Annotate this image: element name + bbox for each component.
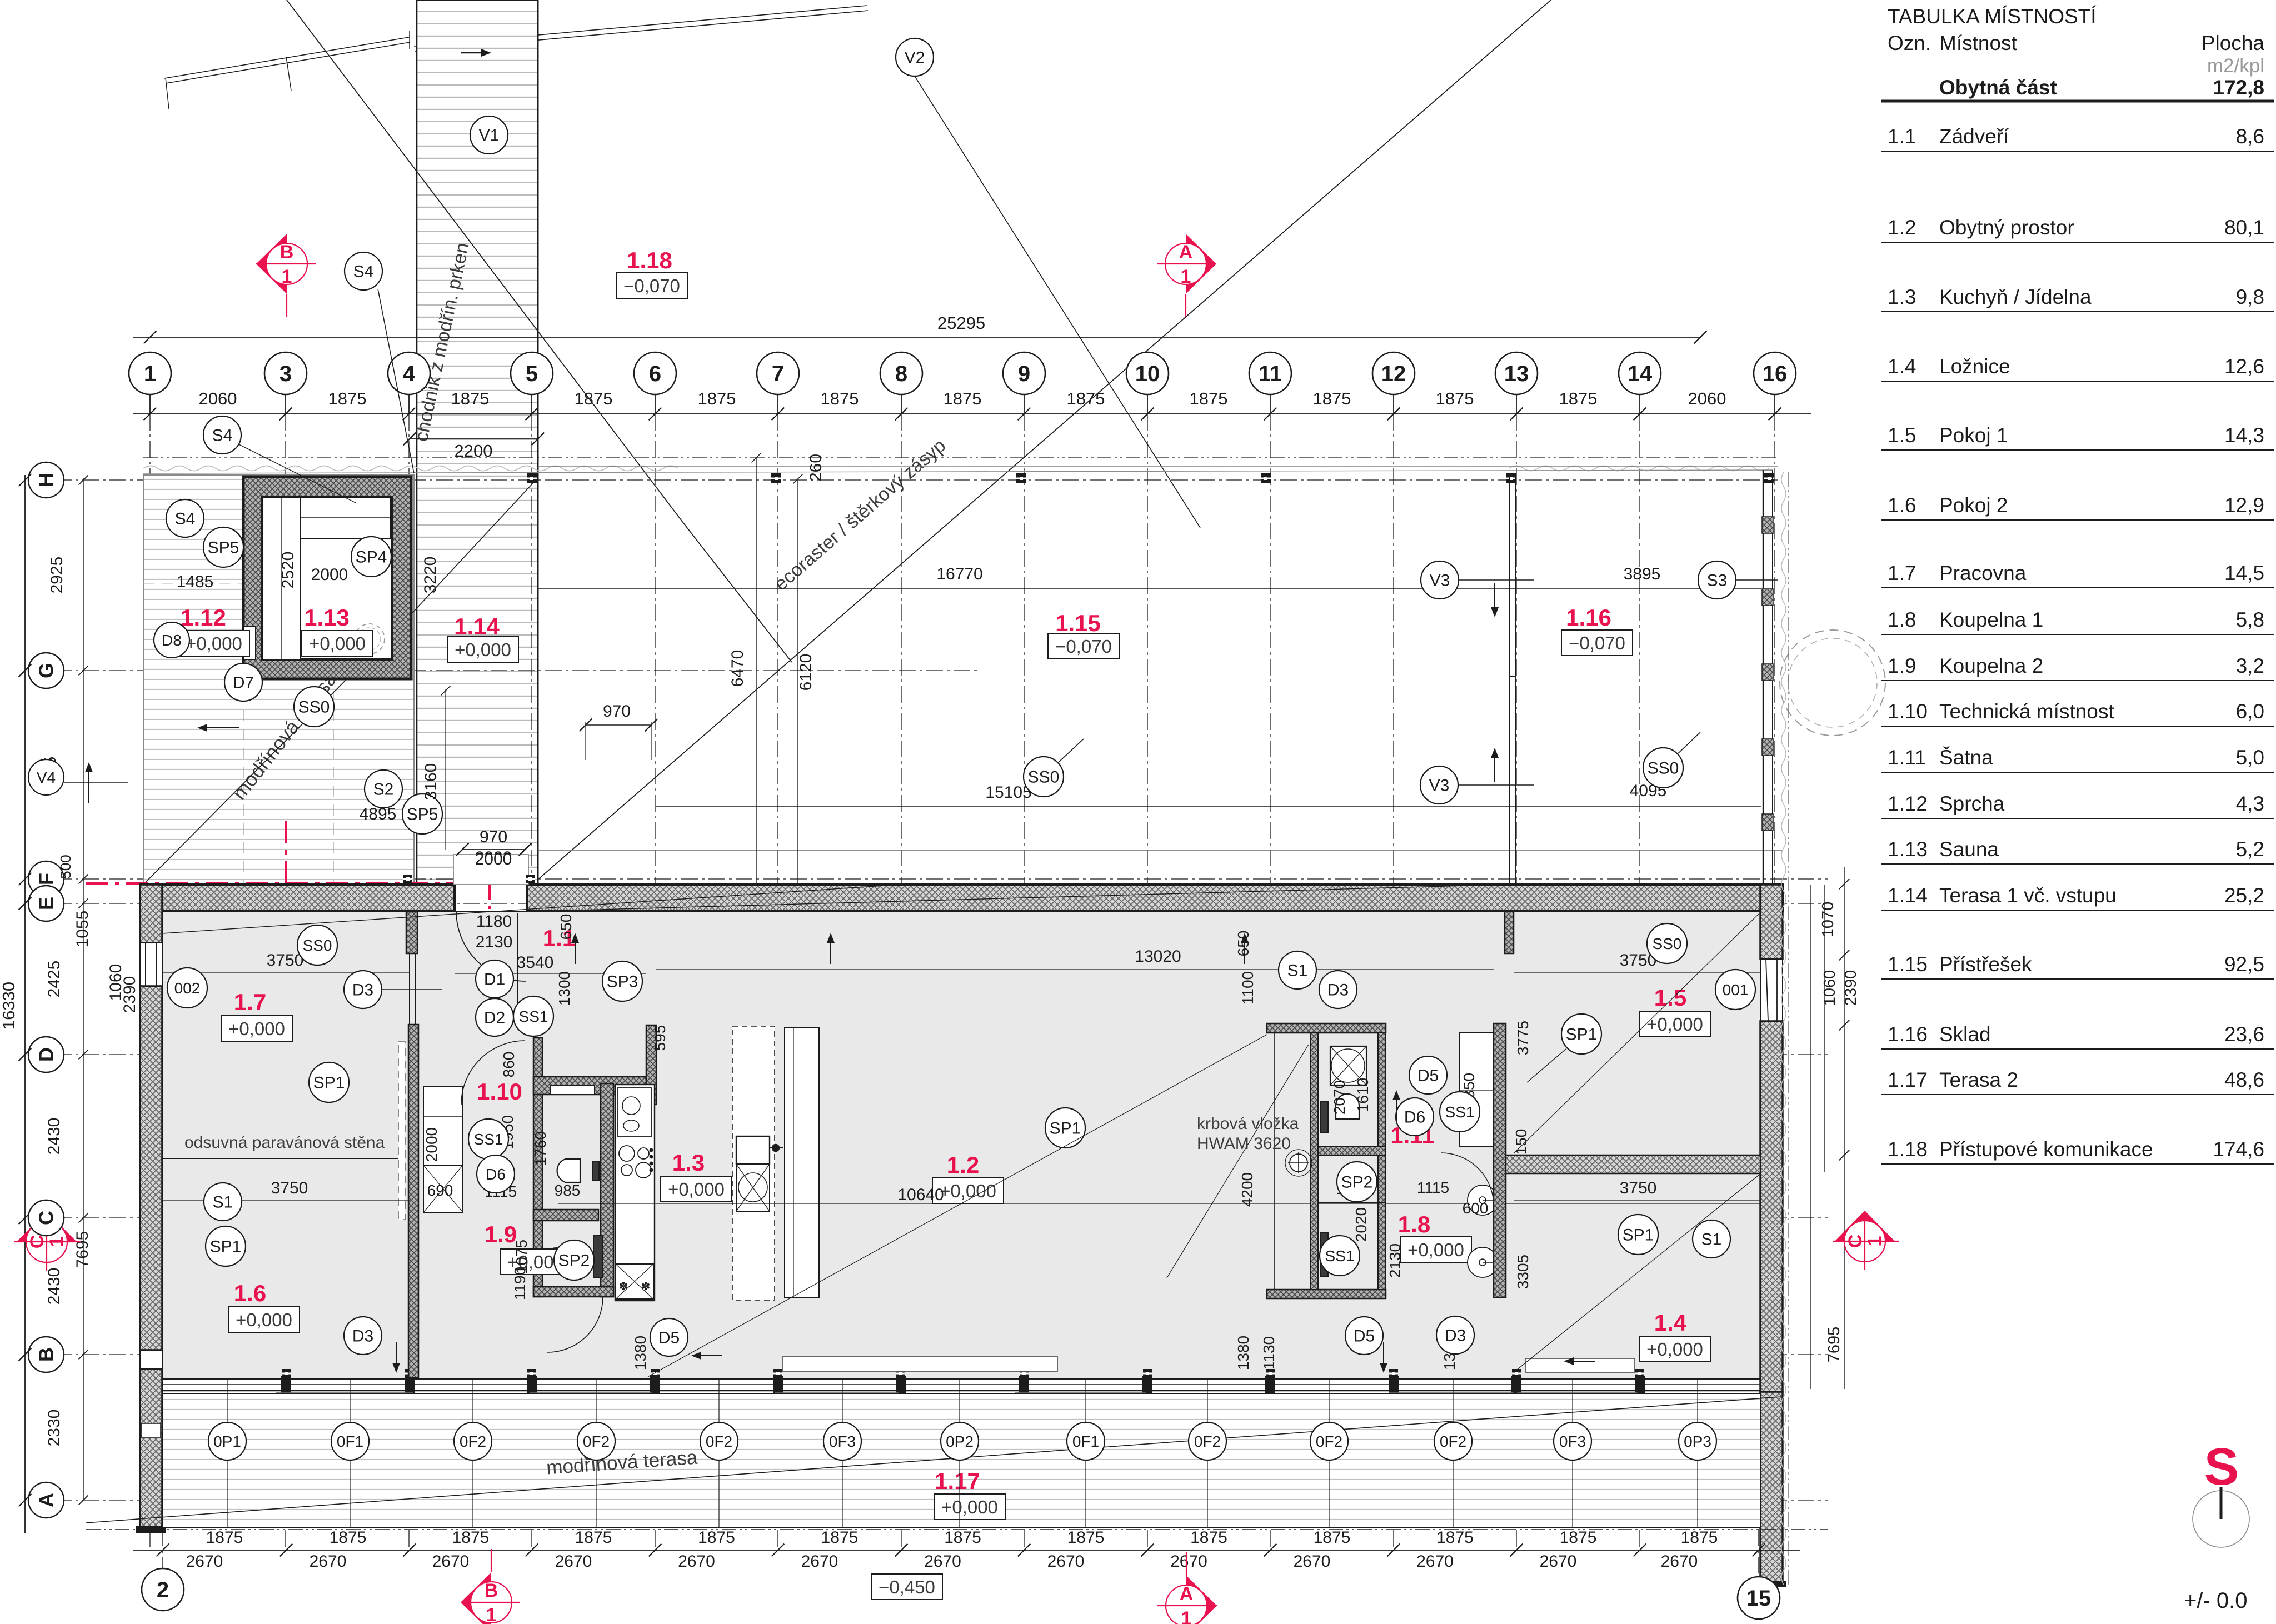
svg-text:4: 4 [403,362,416,386]
svg-text:5,2: 5,2 [2236,838,2264,861]
svg-text:2130: 2130 [1386,1243,1404,1278]
svg-text:D2: D2 [484,1009,505,1027]
svg-text:1.3: 1.3 [1888,286,1916,308]
svg-text:1.6: 1.6 [1888,494,1916,517]
svg-text:80,1: 80,1 [2224,216,2264,239]
svg-text:970: 970 [480,828,507,846]
svg-text:2670: 2670 [1170,1552,1207,1571]
svg-text:2390: 2390 [1842,970,1860,1006]
svg-text:1: 1 [1181,1608,1192,1624]
svg-text:3750: 3750 [1620,1179,1657,1197]
svg-text:1875: 1875 [1067,1528,1105,1547]
svg-text:2520: 2520 [279,552,297,589]
svg-text:SP2: SP2 [558,1252,590,1270]
svg-text:1.17: 1.17 [1888,1068,1928,1091]
svg-text:1.8: 1.8 [1888,608,1916,631]
svg-text:1.16: 1.16 [1888,1023,1928,1046]
svg-text:10: 10 [1135,362,1160,386]
svg-text:S4: S4 [175,510,196,528]
svg-text:S2: S2 [373,781,394,799]
svg-text:1.6: 1.6 [234,1280,266,1306]
svg-text:V2: V2 [905,49,925,67]
svg-text:0F1: 0F1 [1072,1433,1099,1450]
svg-text:D6: D6 [1404,1108,1425,1127]
svg-text:9: 9 [1018,362,1030,386]
svg-text:5,0: 5,0 [2236,746,2264,769]
svg-text:D7: D7 [233,674,254,692]
svg-text:172,8: 172,8 [2213,76,2264,99]
svg-text:1.14: 1.14 [1888,884,1928,907]
svg-text:S4: S4 [212,427,233,445]
svg-text:14,3: 14,3 [2224,424,2264,447]
svg-text:1875: 1875 [328,389,367,408]
svg-text:Koupelna 2: Koupelna 2 [1939,654,2043,677]
svg-text:1875: 1875 [944,1528,981,1547]
svg-text:V3: V3 [1429,777,1450,795]
svg-text:1875: 1875 [1067,389,1105,408]
svg-text:B: B [485,1580,498,1601]
svg-text:+0,000: +0,000 [236,1310,292,1330]
svg-text:2670: 2670 [310,1552,347,1571]
svg-text:Přístupové komunikace: Přístupové komunikace [1939,1138,2153,1161]
svg-text:16330: 16330 [0,982,18,1030]
svg-text:SS1: SS1 [519,1008,548,1025]
svg-text:1.15: 1.15 [1055,610,1101,636]
svg-text:1380: 1380 [1235,1336,1252,1370]
svg-text:H: H [35,473,58,487]
svg-text:SS1: SS1 [1445,1103,1475,1121]
svg-text:TABULKA MÍSTNOSTÍ: TABULKA MÍSTNOSTÍ [1888,5,2097,28]
svg-text:1875: 1875 [1314,1528,1351,1547]
svg-text:3,2: 3,2 [2236,654,2264,677]
svg-text:−0,070: −0,070 [623,276,680,296]
svg-text:D5: D5 [1354,1327,1375,1346]
svg-text:3305: 3305 [1514,1255,1531,1289]
svg-text:3220: 3220 [421,557,440,594]
svg-text:Sauna: Sauna [1939,838,1999,861]
svg-text:2670: 2670 [186,1552,223,1571]
svg-text:2330: 2330 [45,1410,63,1447]
svg-text:2130: 2130 [476,933,513,951]
svg-text:S3: S3 [1707,572,1728,590]
svg-text:8: 8 [895,362,907,386]
svg-text:1875: 1875 [206,1528,243,1547]
svg-text:1.10: 1.10 [1888,700,1928,723]
svg-text:1380: 1380 [632,1336,649,1370]
svg-text:1.7: 1.7 [1888,562,1916,584]
svg-text:2390: 2390 [121,976,139,1013]
svg-text:Ozn.: Ozn. [1888,32,1931,54]
svg-text:C: C [1845,1235,1866,1248]
svg-text:+0,000: +0,000 [668,1179,725,1200]
svg-text:2070: 2070 [1331,1080,1348,1115]
svg-text:2925: 2925 [48,557,66,594]
svg-text:2670: 2670 [1294,1552,1331,1571]
svg-text:V1: V1 [479,127,500,145]
svg-text:15: 15 [1746,1586,1771,1611]
svg-text:Místnost: Místnost [1939,32,2018,54]
svg-text:SP1: SP1 [1050,1120,1081,1138]
svg-text:+0,000: +0,000 [1407,1240,1464,1260]
svg-text:1100: 1100 [1239,971,1256,1005]
svg-text:SS0: SS0 [1648,759,1679,778]
svg-text:V3: V3 [1430,572,1450,590]
svg-text:B: B [280,242,294,263]
svg-text:SP1: SP1 [1566,1026,1598,1044]
svg-text:260: 260 [807,454,825,482]
svg-text:2000: 2000 [423,1127,440,1162]
svg-text:1.10: 1.10 [477,1078,522,1105]
svg-text:1: 1 [144,362,156,386]
svg-text:D3: D3 [352,1327,373,1346]
svg-text:2425: 2425 [45,961,63,998]
svg-text:7: 7 [772,362,784,386]
svg-text:23,6: 23,6 [2224,1023,2264,1046]
svg-text:1875: 1875 [1436,1528,1474,1547]
svg-text:D1: D1 [484,971,505,989]
svg-text:13020: 13020 [1135,947,1181,966]
svg-text:1875: 1875 [575,1528,612,1547]
svg-text:12: 12 [1381,362,1406,386]
svg-text:3750: 3750 [267,951,304,970]
svg-text:14,5: 14,5 [2224,562,2264,584]
svg-text:3: 3 [279,362,292,386]
svg-text:0F3: 0F3 [829,1433,856,1450]
svg-text:A: A [35,1493,58,1507]
svg-text:1.16: 1.16 [1566,604,1611,631]
svg-text:G: G [35,663,58,678]
svg-text:1875: 1875 [451,389,490,408]
svg-text:D3: D3 [352,981,373,1000]
svg-text:595: 595 [651,1025,668,1051]
svg-text:1.18: 1.18 [1888,1138,1928,1161]
svg-text:2670: 2670 [432,1552,470,1571]
svg-text:+0,000: +0,000 [455,639,511,660]
svg-text:1875: 1875 [575,389,613,408]
svg-text:1115: 1115 [1417,1179,1449,1196]
svg-text:1875: 1875 [944,389,982,408]
svg-text:1875: 1875 [1559,389,1598,408]
svg-text:1.11: 1.11 [1888,746,1926,769]
svg-text:1.13: 1.13 [304,604,350,631]
svg-text:+0,000: +0,000 [186,633,242,654]
svg-text:0F2: 0F2 [1194,1433,1221,1450]
svg-text:1875: 1875 [1681,1528,1718,1547]
svg-text:1.5: 1.5 [1888,424,1916,447]
svg-text:1.5: 1.5 [1654,985,1686,1011]
svg-text:Terasa 2: Terasa 2 [1939,1068,2018,1091]
svg-text:✽: ✽ [619,1281,628,1293]
svg-text:1875: 1875 [330,1528,367,1547]
svg-text:10640: 10640 [897,1186,944,1204]
svg-text:3540: 3540 [517,953,554,972]
svg-text:2: 2 [157,1578,169,1602]
svg-text:1: 1 [486,1605,497,1624]
svg-text:2430: 2430 [45,1118,63,1155]
svg-text:1875: 1875 [1436,389,1474,408]
svg-text:1.14: 1.14 [454,613,500,639]
svg-text:4200: 4200 [1239,1172,1256,1207]
svg-text:SS0: SS0 [298,698,330,717]
svg-text:690: 690 [427,1182,453,1199]
svg-text:1.8: 1.8 [1398,1211,1430,1237]
svg-text:1.13: 1.13 [1888,838,1928,861]
svg-text:1875: 1875 [821,1528,859,1547]
svg-text:1.18: 1.18 [627,247,672,273]
svg-text:S1: S1 [213,1193,233,1212]
svg-text:1.17: 1.17 [935,1468,980,1494]
svg-text:S1: S1 [1701,1231,1722,1249]
svg-text:Technická místnost: Technická místnost [1939,700,2114,723]
svg-text:SS1: SS1 [474,1131,503,1148]
svg-text:1.12: 1.12 [1888,792,1928,815]
svg-text:1875: 1875 [821,389,859,408]
svg-text:5,8: 5,8 [2236,608,2264,631]
svg-text:V4: V4 [37,769,56,786]
svg-text:0F2: 0F2 [706,1433,732,1450]
svg-text:SP3: SP3 [607,973,638,991]
svg-text:Zádveří: Zádveří [1939,125,2009,148]
svg-text:2000: 2000 [311,566,348,584]
svg-text:−0,070: −0,070 [1055,636,1112,657]
svg-text:150: 150 [1513,1129,1530,1155]
svg-text:3160: 3160 [422,763,440,801]
svg-text:1.15: 1.15 [1888,953,1928,976]
svg-text:1875: 1875 [698,389,736,408]
svg-text:3895: 3895 [1624,565,1661,583]
svg-text:985: 985 [555,1182,581,1199]
svg-text:6470: 6470 [728,650,747,687]
svg-text:SS1: SS1 [1325,1247,1355,1265]
svg-text:HWAM 3620: HWAM 3620 [1197,1135,1291,1153]
svg-text:SP1: SP1 [1623,1226,1654,1245]
svg-text:2060: 2060 [1688,389,1726,408]
svg-text:002: 002 [174,980,201,997]
svg-text:F: F [35,873,58,885]
svg-text:2060: 2060 [199,389,237,408]
svg-text:0F1: 0F1 [337,1433,363,1450]
svg-text:Koupelna 1: Koupelna 1 [1939,608,2043,631]
svg-text:970: 970 [603,702,631,721]
svg-text:1: 1 [282,266,292,287]
svg-text:S4: S4 [353,263,374,281]
svg-text:D3: D3 [1445,1327,1466,1345]
svg-text:9,8: 9,8 [2236,286,2264,308]
svg-text:7695: 7695 [1825,1327,1843,1363]
svg-text:Terasa 1 vč. vstupu: Terasa 1 vč. vstupu [1939,884,2117,907]
svg-text:Obytný prostor: Obytný prostor [1939,216,2074,239]
svg-text:+0,000: +0,000 [309,633,366,654]
svg-text:Přístřešek: Přístřešek [1939,953,2032,976]
svg-text:m2/kpl: m2/kpl [2207,55,2264,77]
svg-text:1130: 1130 [1260,1336,1277,1370]
svg-text:Sprcha: Sprcha [1939,792,2005,815]
svg-text:7695: 7695 [73,1231,92,1268]
svg-text:1.9: 1.9 [1888,654,1916,677]
svg-text:Sklad: Sklad [1939,1023,1991,1046]
svg-text:92,5: 92,5 [2224,953,2264,976]
svg-text:1300: 1300 [556,971,573,1006]
svg-text:krbová vložka: krbová vložka [1197,1115,1299,1133]
svg-text:16770: 16770 [936,565,982,583]
svg-text:650: 650 [1235,931,1252,957]
svg-text:Pokoj 2: Pokoj 2 [1939,494,2008,517]
svg-text:+0,000: +0,000 [940,1181,996,1201]
svg-text:2670: 2670 [1047,1552,1085,1571]
svg-text:1610: 1610 [1354,1078,1371,1112]
svg-text:1055: 1055 [73,911,92,948]
svg-text:0F2: 0F2 [583,1433,610,1450]
svg-text:0F2: 0F2 [1440,1433,1466,1450]
svg-text:SP5: SP5 [208,539,239,557]
svg-text:−0,070: −0,070 [1569,633,1625,653]
svg-text:1: 1 [1864,1236,1885,1247]
svg-text:1.4: 1.4 [1888,355,1916,378]
svg-text:Šatna: Šatna [1939,746,1993,769]
svg-text:SP1: SP1 [210,1238,242,1256]
svg-text:SS0: SS0 [303,937,332,954]
svg-text:2670: 2670 [1416,1552,1454,1571]
svg-text:4,3: 4,3 [2236,792,2264,815]
svg-text:2670: 2670 [1661,1552,1698,1571]
svg-text:0F2: 0F2 [460,1433,486,1450]
svg-text:B: B [35,1347,58,1362]
svg-text:500: 500 [57,855,74,878]
svg-text:1.12: 1.12 [181,604,226,631]
svg-text:D: D [35,1047,58,1062]
svg-text:1875: 1875 [1190,1528,1227,1547]
svg-text:860: 860 [500,1052,517,1078]
svg-text:+0,000: +0,000 [941,1497,998,1517]
svg-text:001: 001 [1723,981,1749,998]
svg-text:Ložnice: Ložnice [1939,355,2010,378]
svg-text:1.1: 1.1 [1888,125,1916,148]
svg-text:2670: 2670 [801,1552,838,1571]
svg-text:1.9: 1.9 [485,1221,517,1247]
svg-text:174,6: 174,6 [2213,1138,2264,1161]
svg-text:1875: 1875 [1190,389,1228,408]
svg-text:6120: 6120 [797,654,815,691]
svg-text:1.2: 1.2 [1888,216,1916,239]
svg-text:650: 650 [557,914,575,940]
svg-text:12,6: 12,6 [2224,355,2264,378]
svg-text:SP4: SP4 [356,548,387,567]
svg-text:600: 600 [1463,1200,1489,1217]
svg-text:1.2: 1.2 [947,1152,979,1178]
svg-text:15105: 15105 [985,783,1031,802]
svg-text:D8: D8 [162,632,182,649]
svg-text:+/- 0.0: +/- 0.0 [2184,1588,2248,1613]
svg-text:+0,000: +0,000 [1646,1339,1703,1360]
svg-text:1.7: 1.7 [234,989,266,1015]
svg-text:1760: 1760 [532,1131,549,1166]
svg-text:48,6: 48,6 [2224,1068,2264,1091]
svg-text:Pracovna: Pracovna [1939,562,2027,584]
svg-text:A: A [1180,1583,1194,1605]
svg-text:C: C [27,1235,48,1249]
svg-text:1180: 1180 [476,912,512,931]
svg-text:1485: 1485 [177,573,214,591]
svg-text:2670: 2670 [1540,1552,1577,1571]
svg-text:A: A [1179,242,1193,263]
svg-text:3750: 3750 [271,1179,308,1197]
svg-text:odsuvná paravánová stěna: odsuvná paravánová stěna [184,1133,385,1152]
svg-text:−0,450: −0,450 [879,1577,935,1597]
svg-text:4895: 4895 [360,805,397,823]
svg-text:2020: 2020 [1352,1207,1370,1242]
svg-text:C: C [35,1211,58,1225]
svg-text:2670: 2670 [555,1552,592,1571]
svg-text:5: 5 [526,362,538,386]
svg-text:SS0: SS0 [1028,768,1060,787]
svg-text:S1: S1 [1287,962,1308,980]
svg-text:Obytná část: Obytná část [1939,76,2057,99]
svg-text:SS0: SS0 [1653,935,1682,952]
svg-text:3775: 3775 [1514,1021,1531,1055]
svg-text:1190: 1190 [511,1267,528,1300]
svg-text:SP1: SP1 [313,1074,345,1092]
svg-text:0P2: 0P2 [946,1433,974,1450]
svg-text:E: E [35,897,58,910]
svg-text:1875: 1875 [698,1528,735,1547]
svg-text:2000: 2000 [475,850,512,868]
svg-text:1: 1 [1181,266,1191,287]
svg-text:1875: 1875 [1313,389,1351,408]
svg-text:2670: 2670 [678,1552,715,1571]
svg-text:16: 16 [1763,362,1788,386]
svg-text:✽: ✽ [641,1281,651,1293]
svg-text:25,2: 25,2 [2224,884,2264,907]
svg-text:Kuchyň / Jídelna: Kuchyň / Jídelna [1939,286,2092,308]
svg-text:6,0: 6,0 [2236,700,2264,723]
svg-text:D3: D3 [1327,981,1349,1000]
svg-text:0P3: 0P3 [1684,1433,1711,1450]
svg-text:14: 14 [1628,362,1653,386]
svg-text:13: 13 [1504,362,1529,386]
svg-text:SP5: SP5 [407,806,438,824]
svg-text:1.4: 1.4 [1654,1310,1687,1336]
svg-text:1: 1 [46,1237,67,1247]
svg-text:2430: 2430 [45,1268,63,1305]
svg-text:0P1: 0P1 [213,1433,241,1450]
svg-text:6: 6 [649,362,661,386]
svg-text:D5: D5 [1417,1067,1439,1085]
svg-text:+0,000: +0,000 [1646,1014,1703,1035]
svg-text:25295: 25295 [937,313,985,333]
svg-text:Pokoj 1: Pokoj 1 [1939,424,2008,447]
svg-text:2670: 2670 [924,1552,961,1571]
svg-text:+0,000: +0,000 [228,1018,285,1039]
svg-text:8,6: 8,6 [2236,125,2264,148]
svg-text:SP2: SP2 [1341,1173,1373,1192]
svg-text:0F3: 0F3 [1559,1433,1586,1450]
svg-text:1060: 1060 [1821,970,1839,1006]
svg-text:1875: 1875 [452,1528,490,1547]
svg-text:12,9: 12,9 [2224,494,2264,517]
svg-text:Plocha: Plocha [2202,32,2265,54]
svg-text:1.3: 1.3 [672,1150,705,1176]
svg-text:1070: 1070 [1819,902,1837,938]
svg-text:1875: 1875 [1560,1528,1597,1547]
svg-text:D6: D6 [486,1166,506,1183]
svg-text:11: 11 [1259,362,1282,386]
svg-text:0F2: 0F2 [1316,1433,1342,1450]
svg-text:D5: D5 [658,1329,680,1347]
